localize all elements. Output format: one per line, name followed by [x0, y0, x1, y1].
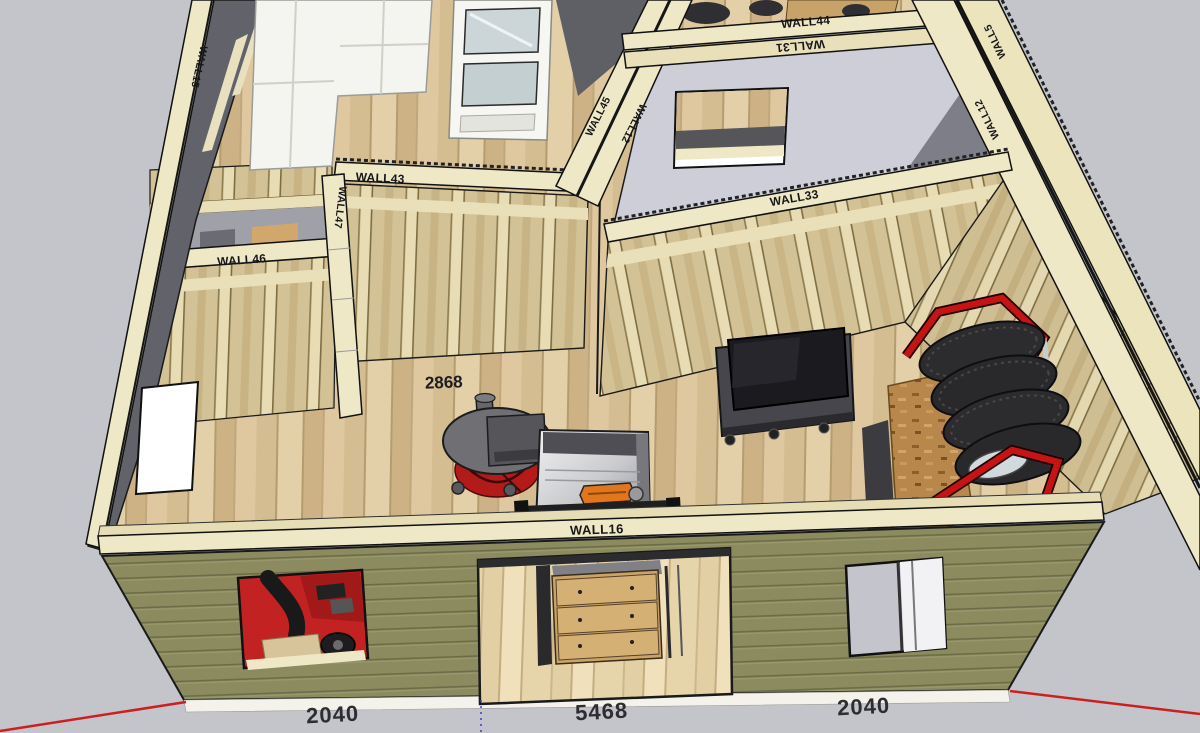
dimension-front-left: 2040: [306, 701, 360, 729]
dimension-front-center: 5468: [575, 698, 629, 726]
left-wall-window[interactable]: [136, 382, 198, 494]
stove-foot: [504, 484, 516, 496]
cart-wheel: [725, 435, 735, 445]
snowblower-opening[interactable]: [238, 570, 368, 670]
coffee-table[interactable]: [449, 0, 552, 140]
stove-foot: [452, 482, 464, 494]
wall43-label: WALL43: [355, 170, 405, 187]
snowblower-engine: [316, 583, 346, 600]
chair-silhouette: [749, 0, 783, 16]
dresser[interactable]: [552, 570, 662, 664]
cart-wheel: [819, 423, 829, 433]
model-canvas[interactable]: WALL43 WALL46 WALL47 WALL45 WALL12 WALL4…: [0, 0, 1200, 733]
right-opening[interactable]: [846, 558, 946, 656]
model-viewport[interactable]: WALL43 WALL46 WALL47 WALL45 WALL12 WALL4…: [0, 0, 1200, 733]
gray-room-window[interactable]: [674, 88, 788, 168]
wall16-label: WALL16: [570, 521, 624, 538]
cart-wheel: [769, 429, 779, 439]
post: [536, 565, 552, 666]
floor-dimension: 2868: [425, 372, 463, 392]
center-opening[interactable]: [478, 548, 732, 704]
front-wall[interactable]: [102, 522, 1104, 712]
dimension-front-right: 2040: [837, 693, 891, 721]
